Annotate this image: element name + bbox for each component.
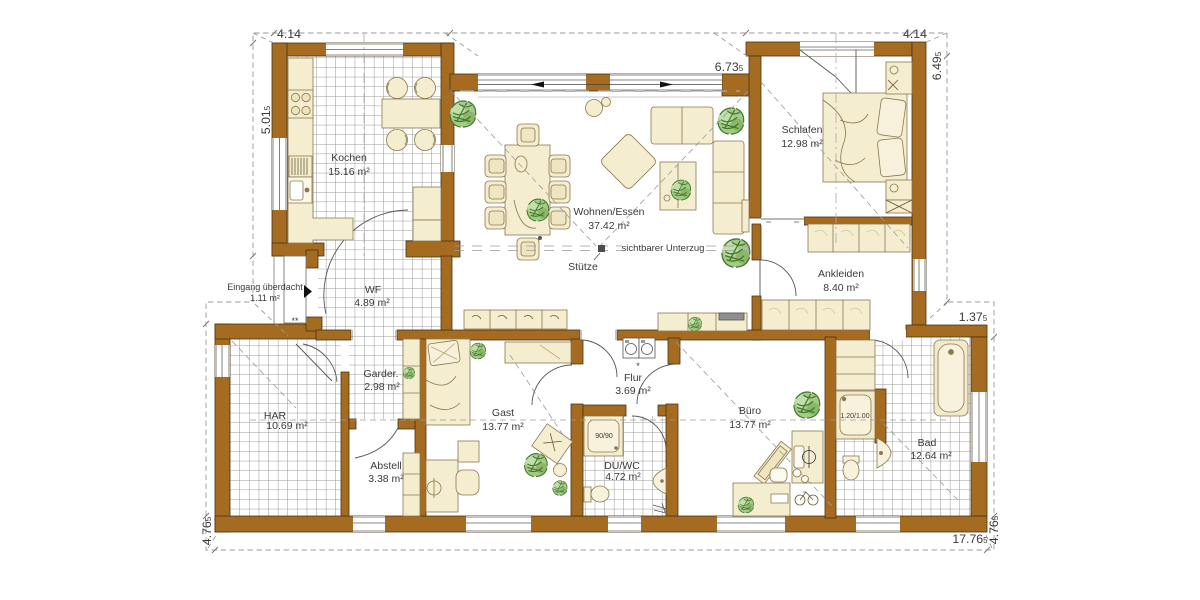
svg-text:Stütze: Stütze bbox=[568, 261, 598, 273]
svg-text:**: ** bbox=[291, 316, 299, 326]
svg-text:13.77 m²: 13.77 m² bbox=[729, 419, 771, 431]
svg-text:Schlafen: Schlafen bbox=[782, 124, 823, 136]
svg-text:3.69 m²: 3.69 m² bbox=[615, 385, 651, 397]
svg-text:37.42 m²: 37.42 m² bbox=[588, 220, 630, 232]
svg-text:Eingang überdacht: Eingang überdacht bbox=[227, 282, 303, 292]
svg-text:4.14: 4.14 bbox=[903, 27, 927, 41]
svg-text:90/90: 90/90 bbox=[595, 433, 613, 440]
svg-text:Büro: Büro bbox=[739, 405, 761, 417]
svg-text:17.765: 17.765 bbox=[952, 532, 988, 546]
svg-text:1.11 m²: 1.11 m² bbox=[250, 293, 280, 303]
svg-text:sichtbarer Unterzug: sichtbarer Unterzug bbox=[622, 243, 705, 254]
svg-text:4.14: 4.14 bbox=[277, 27, 301, 41]
svg-text:4.72 m²: 4.72 m² bbox=[605, 471, 641, 483]
svg-text:10.69 m²: 10.69 m² bbox=[266, 420, 308, 432]
svg-text:WF: WF bbox=[365, 284, 381, 296]
svg-text:Gast: Gast bbox=[492, 407, 514, 419]
svg-text:13.77 m²: 13.77 m² bbox=[482, 421, 524, 433]
svg-text:Flur: Flur bbox=[624, 372, 643, 384]
svg-text:Wohnen/Essen: Wohnen/Essen bbox=[573, 206, 644, 218]
svg-text:Kochen: Kochen bbox=[331, 152, 367, 164]
svg-text:2.98 m²: 2.98 m² bbox=[364, 381, 400, 393]
svg-text:*: * bbox=[636, 361, 640, 371]
svg-text:Garder.: Garder. bbox=[363, 368, 398, 380]
svg-text:12.64 m²: 12.64 m² bbox=[910, 450, 952, 462]
svg-text:Abstell: Abstell bbox=[370, 460, 402, 472]
svg-text:1.20/1.00: 1.20/1.00 bbox=[840, 413, 869, 420]
svg-text:4.89 m²: 4.89 m² bbox=[354, 297, 390, 309]
svg-text:8.40 m²: 8.40 m² bbox=[823, 282, 859, 294]
svg-text:3.38 m²: 3.38 m² bbox=[368, 473, 404, 485]
svg-text:Ankleiden: Ankleiden bbox=[818, 268, 864, 280]
svg-text:15.16 m²: 15.16 m² bbox=[328, 166, 370, 178]
svg-text:Bad: Bad bbox=[918, 437, 937, 449]
svg-text:12.98 m²: 12.98 m² bbox=[781, 138, 823, 150]
